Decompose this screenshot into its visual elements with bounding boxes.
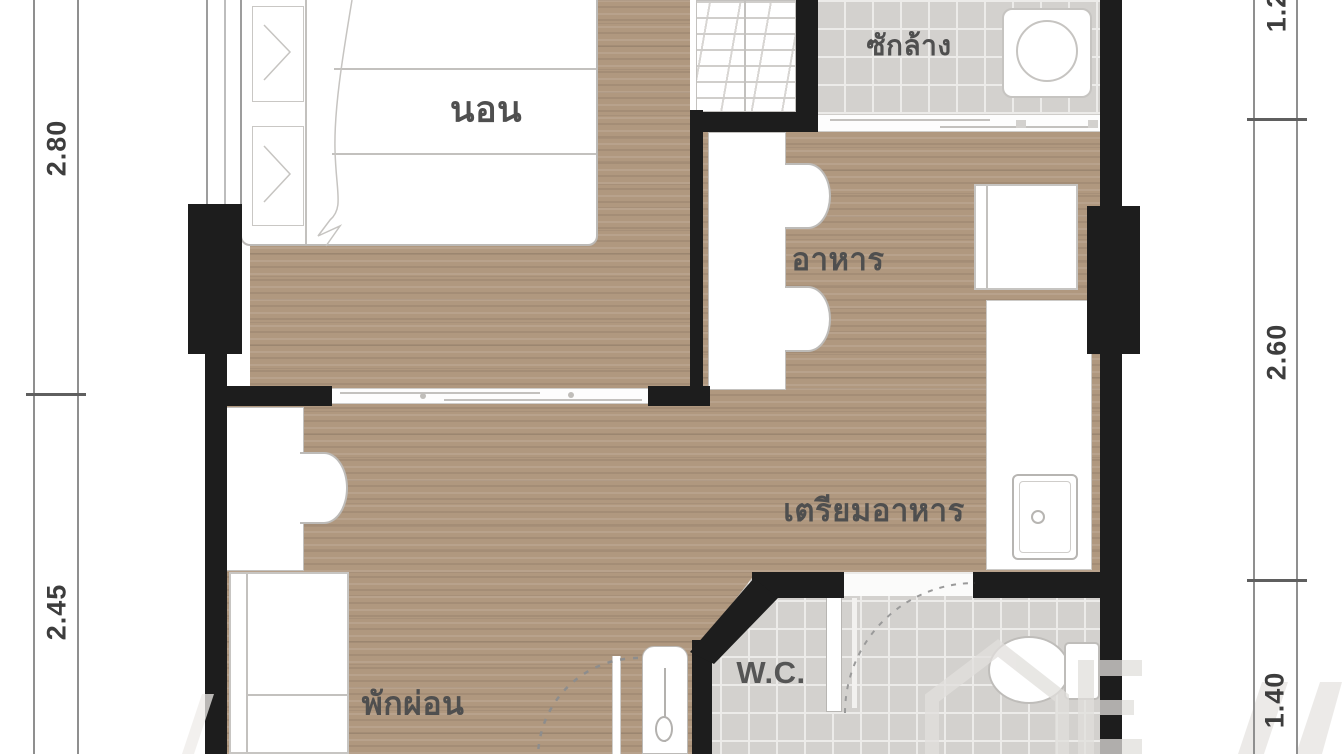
living-label: พักผ่อน: [362, 679, 465, 730]
bedroom-label: นอน: [450, 81, 522, 138]
laundry-label: ซักล้าง: [866, 24, 951, 68]
right-dimension-line: [1296, 0, 1298, 754]
dimension-right-1: 1.20: [1262, 0, 1293, 32]
left-dimension-line: [33, 0, 35, 754]
dimension-left-2: 2.45: [42, 584, 73, 641]
dimension-left-1: 2.80: [42, 120, 73, 177]
pillow-fold: [264, 25, 290, 80]
dimension-right-2: 2.60: [1262, 324, 1293, 381]
dimension-right-3: 1.40: [1260, 672, 1291, 729]
left-dimension-line: [77, 0, 79, 754]
plan-overlay: [0, 0, 1342, 754]
entry-door-swing-arc: [538, 658, 638, 754]
wc-chamfer-wall: [690, 578, 778, 664]
wc-door-swing-arc: [845, 583, 975, 713]
dining-label: อาหาร: [791, 234, 884, 284]
pillow-fold: [264, 146, 290, 202]
right-dimension-tick: [1247, 579, 1307, 582]
blanket-fold: [318, 0, 352, 246]
wc-label: W.C.: [736, 655, 805, 691]
kitchen-label: เตรียมอาหาร: [783, 485, 965, 535]
floor-plan: นอน ซักล้าง อาหาร เตรียมอาหาร พักผ่อน W.…: [0, 0, 1342, 754]
right-dimension-line: [1253, 0, 1255, 754]
right-dimension-tick: [1247, 118, 1307, 121]
left-dimension-tick: [26, 393, 86, 396]
